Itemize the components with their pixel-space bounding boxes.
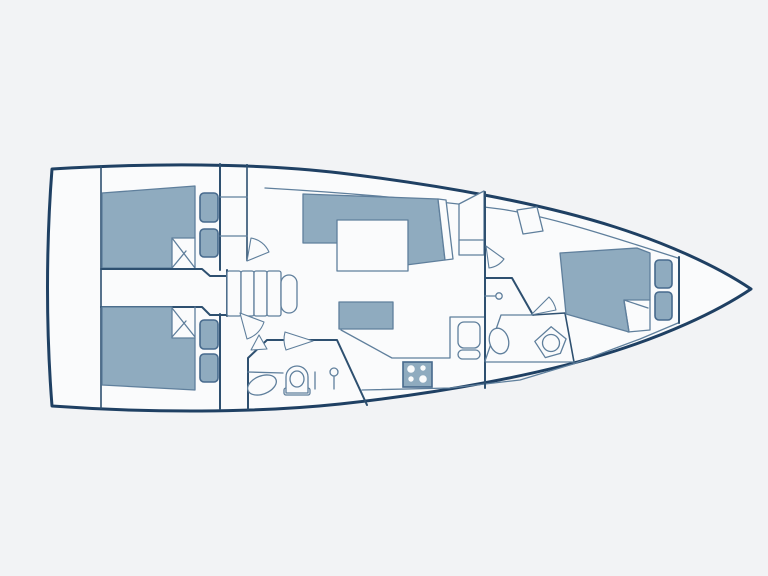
sink-small	[458, 350, 480, 359]
dining-table	[337, 220, 408, 271]
sink	[458, 322, 480, 348]
floor-plan-canvas	[0, 0, 768, 576]
step	[254, 271, 267, 316]
compression-post	[496, 293, 502, 299]
step	[281, 275, 297, 313]
seat-cushion	[200, 320, 218, 349]
burner	[419, 375, 427, 383]
burner	[407, 365, 415, 373]
burner	[408, 376, 413, 381]
seat-cushion	[200, 229, 218, 257]
seat-cushion	[655, 292, 672, 320]
toilet-seat	[290, 371, 304, 387]
shower-mixer	[330, 368, 338, 376]
step	[227, 271, 241, 316]
bench-seat	[339, 302, 393, 329]
step	[267, 271, 281, 316]
step	[241, 271, 254, 316]
seat-cushion	[655, 260, 672, 288]
seat-cushion	[200, 193, 218, 222]
seat-cushion	[200, 354, 218, 382]
burner	[420, 365, 425, 370]
stove	[403, 362, 432, 387]
